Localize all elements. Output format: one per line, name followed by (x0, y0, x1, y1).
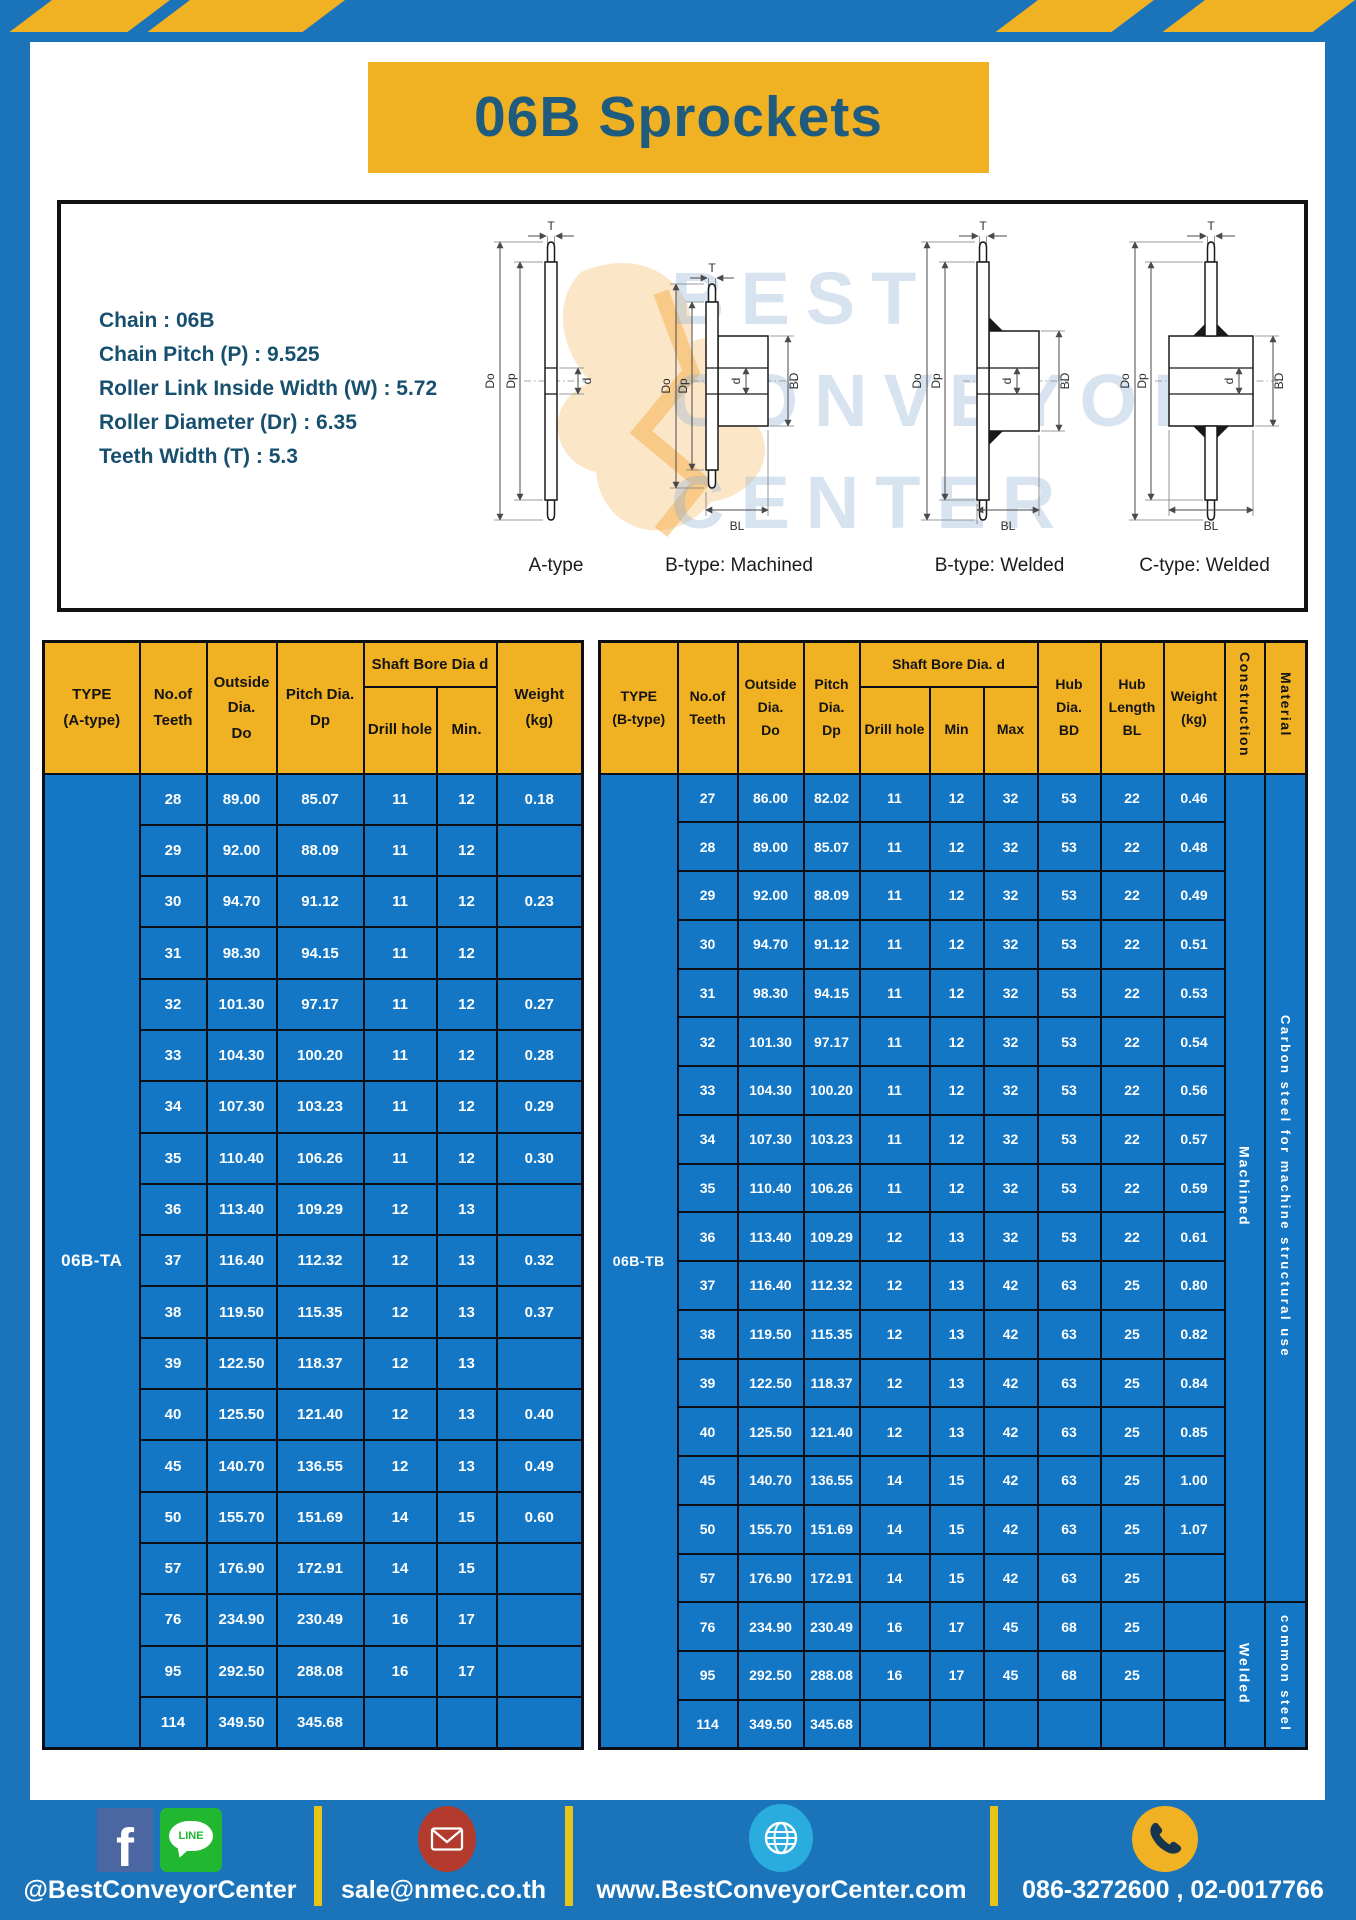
table-cell: 106.26 (804, 1164, 860, 1213)
table-cell: 288.08 (804, 1651, 860, 1700)
table-cell: 32 (984, 1164, 1038, 1213)
page-border-left (0, 0, 30, 1920)
table-cell: 45 (140, 1440, 207, 1491)
table-cell: 0.46 (1164, 774, 1225, 823)
globe-icon[interactable] (749, 1804, 813, 1872)
table-cell (497, 1594, 583, 1645)
column-header: Hub Length BL (1101, 642, 1164, 774)
table-row: 38119.50115.3512134263250.82 (600, 1310, 1307, 1359)
svg-text:BL: BL (729, 519, 744, 533)
table-cell: 53 (1038, 1066, 1101, 1115)
table-cell: 32 (984, 871, 1038, 920)
table-cell: 29 (678, 871, 738, 920)
table-cell: 136.55 (804, 1456, 860, 1505)
table-cell: 63 (1038, 1359, 1101, 1408)
spec-line: Chain Pitch (P) : 9.525 (99, 338, 437, 372)
table-cell: 88.09 (804, 871, 860, 920)
top-decorative-band (0, 0, 1356, 42)
column-header-construction: Construction (1225, 642, 1265, 774)
table-cell: 53 (1038, 1017, 1101, 1066)
table-cell: 27 (678, 774, 738, 823)
table-cell: 151.69 (804, 1505, 860, 1554)
table-cell: 11 (364, 825, 437, 876)
table-cell: 97.17 (277, 979, 364, 1030)
table-cell: 36 (678, 1212, 738, 1261)
spec-line: Teeth Width (T) : 5.3 (99, 440, 437, 474)
table-cell: 13 (437, 1286, 497, 1337)
table-cell: 42 (984, 1310, 1038, 1359)
table-cell: 37 (678, 1261, 738, 1310)
table-cell: 12 (437, 1030, 497, 1081)
table-cell: 32 (678, 1017, 738, 1066)
table-row: 50155.70151.6914154263251.07 (600, 1505, 1307, 1554)
table-cell: 12 (364, 1286, 437, 1337)
table-cell: 53 (1038, 920, 1101, 969)
table-cell: 13 (437, 1389, 497, 1440)
table-cell: 140.70 (738, 1456, 804, 1505)
table-cell: 33 (678, 1066, 738, 1115)
table-cell: 12 (930, 1115, 984, 1164)
table-cell: 176.90 (207, 1543, 277, 1594)
table-row: 45140.70136.5514154263251.00 (600, 1456, 1307, 1505)
table-cell: 82.02 (804, 774, 860, 823)
table-cell: 12 (860, 1261, 930, 1310)
table-cell: 25 (1101, 1554, 1164, 1603)
svg-text:Dp: Dp (1135, 373, 1149, 389)
table-cell: 76 (140, 1594, 207, 1645)
column-header: Max (984, 687, 1038, 774)
table-cell: 172.91 (804, 1554, 860, 1603)
table-cell: 85.07 (277, 774, 364, 825)
table-cell: 76 (678, 1602, 738, 1651)
table-cell: 42 (984, 1505, 1038, 1554)
table-cell: 114 (140, 1697, 207, 1748)
table-cell: 14 (364, 1543, 437, 1594)
column-header: Outside Dia. Do (738, 642, 804, 774)
table-cell: 86.00 (738, 774, 804, 823)
table-cell: 12 (364, 1440, 437, 1491)
table-cell: 63 (1038, 1310, 1101, 1359)
table-cell: 0.29 (497, 1081, 583, 1132)
table-cell: 12 (437, 825, 497, 876)
phone-icon[interactable] (1132, 1806, 1198, 1872)
table-cell: 89.00 (207, 774, 277, 825)
diagram-caption: C-type: Welded (1107, 555, 1302, 577)
table-cell: 12 (860, 1407, 930, 1456)
hazard-stripe (10, 0, 170, 32)
table-cell: 37 (140, 1235, 207, 1286)
table-cell: 12 (860, 1359, 930, 1408)
svg-text:Do: Do (483, 373, 497, 389)
table-cell: 118.37 (277, 1338, 364, 1389)
table-cell: 0.56 (1164, 1066, 1225, 1115)
table-cell: 63 (1038, 1407, 1101, 1456)
specs-list: Chain : 06BChain Pitch (P) : 9.525Roller… (99, 304, 437, 474)
table-cell: 92.00 (738, 871, 804, 920)
table-row: 2992.0088.0911123253220.49 (600, 871, 1307, 920)
table-row: 06B-TA2889.0085.0711120.18 (44, 774, 583, 825)
svg-text:BD: BD (1272, 372, 1286, 389)
facebook-icon[interactable]: f (97, 1808, 153, 1872)
website-label[interactable]: www.BestConveyorCenter.com (573, 1876, 990, 1910)
table-cell: 1.07 (1164, 1505, 1225, 1554)
table-cell: 94.70 (207, 876, 277, 927)
table-cell: 53 (1038, 1115, 1101, 1164)
table-cell: 12 (437, 1133, 497, 1184)
table-cell (860, 1700, 930, 1749)
table-cell (1164, 1554, 1225, 1603)
table-cell: 57 (140, 1543, 207, 1594)
table-cell: 53 (1038, 774, 1101, 823)
table-cell: 121.40 (277, 1389, 364, 1440)
table-cell: 16 (860, 1651, 930, 1700)
table-cell: 57 (678, 1554, 738, 1603)
column-header: Min (930, 687, 984, 774)
table-cell: 0.23 (497, 876, 583, 927)
table-cell: 32 (984, 1066, 1038, 1115)
page-border-right (1325, 0, 1356, 1920)
svg-text:d: d (1222, 378, 1236, 385)
table-cell: 109.29 (804, 1212, 860, 1261)
table-cell: 12 (930, 1017, 984, 1066)
table-cell: 12 (930, 969, 984, 1018)
table-cell: 53 (1038, 1212, 1101, 1261)
table-cell: 92.00 (207, 825, 277, 876)
table-cell (1164, 1700, 1225, 1749)
table-cell (1164, 1602, 1225, 1651)
table-cell (1164, 1651, 1225, 1700)
table-cell: 17 (930, 1602, 984, 1651)
table-cell: 0.61 (1164, 1212, 1225, 1261)
table-row: 3198.3094.1511123253220.53 (600, 969, 1307, 1018)
table-cell: 13 (437, 1440, 497, 1491)
table-cell: 230.49 (804, 1602, 860, 1651)
email-icon[interactable] (418, 1806, 476, 1872)
table-cell: 22 (1101, 822, 1164, 871)
table-cell: 39 (140, 1338, 207, 1389)
table-cell: 91.12 (277, 876, 364, 927)
table-cell: 25 (1101, 1310, 1164, 1359)
table-cell: 292.50 (738, 1651, 804, 1700)
column-header: Outside Dia. Do (207, 642, 277, 774)
table-cell: 345.68 (804, 1700, 860, 1749)
vertical-span-cell: common steel (1265, 1602, 1307, 1748)
table-row: 57176.90172.911415426325 (600, 1554, 1307, 1603)
table-cell: 11 (364, 1081, 437, 1132)
table-cell: 68 (1038, 1651, 1101, 1700)
b-type-spec-table: TYPE (B-type) No.of Teeth Outside Dia. D… (598, 640, 1308, 1750)
table-cell: 13 (930, 1310, 984, 1359)
table-cell: 32 (984, 1017, 1038, 1066)
table-cell: 53 (1038, 1164, 1101, 1213)
table-cell: 115.35 (804, 1310, 860, 1359)
table-cell: 25 (1101, 1359, 1164, 1408)
footer-divider (314, 1806, 322, 1906)
table-cell: 107.30 (207, 1081, 277, 1132)
table-cell: 125.50 (738, 1407, 804, 1456)
table-cell: 0.37 (497, 1286, 583, 1337)
table-cell: 32 (984, 822, 1038, 871)
table-cell: 11 (364, 979, 437, 1030)
social-handle-label[interactable]: @BestConveyorCenter (4, 1876, 316, 1910)
table-cell: 13 (437, 1184, 497, 1235)
table-cell: 22 (1101, 1164, 1164, 1213)
table-cell: 113.40 (207, 1184, 277, 1235)
table-cell (1101, 1700, 1164, 1749)
table-cell: 116.40 (207, 1235, 277, 1286)
table-cell: 112.32 (277, 1235, 364, 1286)
table-cell: 35 (678, 1164, 738, 1213)
table-cell: 32 (984, 920, 1038, 969)
table-cell: 0.84 (1164, 1359, 1225, 1408)
table-cell: 63 (1038, 1505, 1101, 1554)
table-cell: 288.08 (277, 1646, 364, 1697)
table-cell: 42 (984, 1456, 1038, 1505)
table-cell: 42 (984, 1407, 1038, 1456)
table-cell: 11 (860, 1066, 930, 1115)
svg-text:BD: BD (787, 372, 801, 389)
table-cell: 34 (140, 1081, 207, 1132)
table-cell: 25 (1101, 1651, 1164, 1700)
table-cell: 17 (930, 1651, 984, 1700)
table-cell: 11 (364, 1133, 437, 1184)
diagram-caption: B-type: Welded (897, 555, 1102, 577)
table-cell: 1.00 (1164, 1456, 1225, 1505)
column-header: Pitch Dia. Dp (277, 642, 364, 774)
table-cell: 94.15 (804, 969, 860, 1018)
table-cell: 15 (437, 1492, 497, 1543)
table-row: 40125.50121.4012134263250.85 (600, 1407, 1307, 1456)
svg-text:Do: Do (659, 378, 673, 394)
svg-text:Dp: Dp (929, 373, 943, 389)
table-cell: 0.60 (497, 1492, 583, 1543)
column-header-material: Material (1265, 642, 1307, 774)
table-cell: 12 (437, 979, 497, 1030)
svg-text:T: T (708, 261, 716, 275)
table-cell: 12 (860, 1310, 930, 1359)
contact-footer: f LINE @BestConveyorCenter sale@nmec.co.… (0, 1800, 1356, 1920)
table-cell: 0.54 (1164, 1017, 1225, 1066)
vertical-span-cell: Machined (1225, 774, 1265, 1603)
column-header: Hub Dia. BD (1038, 642, 1101, 774)
line-app-icon[interactable]: LINE (160, 1808, 222, 1872)
table-cell: 100.20 (804, 1066, 860, 1115)
table-cell: 0.48 (1164, 822, 1225, 871)
table-cell: 68 (1038, 1602, 1101, 1651)
phone-numbers-label[interactable]: 086-3272600 , 02-0017766 (998, 1876, 1348, 1910)
table-cell: 25 (1101, 1602, 1164, 1651)
table-cell: 17 (437, 1646, 497, 1697)
table-cell: 12 (930, 774, 984, 823)
table-cell (437, 1697, 497, 1748)
svg-text:Do: Do (1118, 373, 1132, 389)
table-cell: 11 (364, 774, 437, 825)
table-cell: 0.85 (1164, 1407, 1225, 1456)
table-cell: 53 (1038, 871, 1101, 920)
table-cell: 16 (364, 1594, 437, 1645)
table-cell: 45 (678, 1456, 738, 1505)
svg-text:d: d (1000, 378, 1014, 385)
table-cell: 115.35 (277, 1286, 364, 1337)
email-label[interactable]: sale@nmec.co.th (322, 1876, 565, 1910)
table-cell: 14 (364, 1492, 437, 1543)
column-header: TYPE (A-type) (44, 642, 140, 774)
table-cell: 0.28 (497, 1030, 583, 1081)
table-cell: 98.30 (207, 927, 277, 978)
table-cell: 113.40 (738, 1212, 804, 1261)
column-header: No.of Teeth (140, 642, 207, 774)
table-cell: 0.32 (497, 1235, 583, 1286)
table-cell: 15 (930, 1456, 984, 1505)
table-cell (497, 1646, 583, 1697)
table-cell: 176.90 (738, 1554, 804, 1603)
table-cell: 0.30 (497, 1133, 583, 1184)
table-row: 06B-TB2786.0082.0211123253220.46Machined… (600, 774, 1307, 823)
spec-line: Roller Link Inside Width (W) : 5.72 (99, 372, 437, 406)
table-cell: 31 (678, 969, 738, 1018)
table-cell: 14 (860, 1554, 930, 1603)
table-cell: 119.50 (207, 1286, 277, 1337)
table-cell: 29 (140, 825, 207, 876)
table-cell: 0.18 (497, 774, 583, 825)
table-cell: 121.40 (804, 1407, 860, 1456)
table-cell: 16 (364, 1646, 437, 1697)
table-cell: 11 (860, 871, 930, 920)
svg-text:BD: BD (1058, 372, 1072, 389)
footer-divider (990, 1806, 998, 1906)
table-cell: 28 (678, 822, 738, 871)
table-cell: 15 (930, 1554, 984, 1603)
table-cell: 12 (364, 1235, 437, 1286)
page-title: 06B Sprockets (368, 62, 989, 173)
column-header: Weight (kg) (1164, 642, 1225, 774)
table-cell: 110.40 (738, 1164, 804, 1213)
table-row: 36113.40109.2912133253220.61 (600, 1212, 1307, 1261)
table-cell: 11 (860, 1115, 930, 1164)
table-cell: 0.49 (497, 1440, 583, 1491)
column-header: Min. (437, 687, 497, 774)
table-cell: 104.30 (207, 1030, 277, 1081)
svg-text:BL: BL (1204, 519, 1219, 533)
table-cell: 0.59 (1164, 1164, 1225, 1213)
table-row: 95292.50288.081617456825 (600, 1651, 1307, 1700)
table-cell: 22 (1101, 1212, 1164, 1261)
table-cell: 234.90 (207, 1594, 277, 1645)
table-cell: 12 (364, 1338, 437, 1389)
svg-text:Dp: Dp (676, 378, 690, 394)
table-cell: 39 (678, 1359, 738, 1408)
table-cell: 155.70 (738, 1505, 804, 1554)
table-cell: 22 (1101, 969, 1164, 1018)
table-cell: 11 (860, 1164, 930, 1213)
table-cell: 13 (930, 1359, 984, 1408)
table-cell: 32 (984, 969, 1038, 1018)
type-label: 06B-TA (44, 774, 140, 1749)
table-row: 3094.7091.1211123253220.51 (600, 920, 1307, 969)
table-cell: 22 (1101, 1017, 1164, 1066)
table-cell: 22 (1101, 920, 1164, 969)
column-header-group: Shaft Bore Dia d (364, 642, 497, 687)
table-cell: 107.30 (738, 1115, 804, 1164)
table-cell: 42 (984, 1554, 1038, 1603)
table-cell: 95 (678, 1651, 738, 1700)
table-cell: 155.70 (207, 1492, 277, 1543)
table-cell: 0.80 (1164, 1261, 1225, 1310)
table-cell: 349.50 (207, 1697, 277, 1748)
column-header-group: Shaft Bore Dia. d (860, 642, 1038, 687)
table-cell: 109.29 (277, 1184, 364, 1235)
table-cell: 12 (860, 1212, 930, 1261)
table-cell: 0.27 (497, 979, 583, 1030)
table-cell: 32 (984, 1115, 1038, 1164)
table-cell: 98.30 (738, 969, 804, 1018)
table-cell: 0.40 (497, 1389, 583, 1440)
table-cell: 40 (140, 1389, 207, 1440)
table-cell: 125.50 (207, 1389, 277, 1440)
table-cell: 22 (1101, 774, 1164, 823)
table-cell: 45 (984, 1651, 1038, 1700)
table-cell: 63 (1038, 1261, 1101, 1310)
table-cell: 11 (860, 774, 930, 823)
footer-divider (565, 1806, 573, 1906)
vertical-span-cell: Welded (1225, 1602, 1265, 1748)
table-cell: 25 (1101, 1407, 1164, 1456)
table-cell: 12 (930, 1066, 984, 1115)
table-cell: 100.20 (277, 1030, 364, 1081)
table-cell: 50 (140, 1492, 207, 1543)
table-cell: 12 (930, 920, 984, 969)
spec-line: Chain : 06B (99, 304, 437, 338)
table-cell: 292.50 (207, 1646, 277, 1697)
hazard-stripe (1163, 0, 1355, 32)
table-cell: 85.07 (804, 822, 860, 871)
table-cell (1038, 1700, 1101, 1749)
svg-text:T: T (1207, 219, 1215, 233)
table-cell: 38 (140, 1286, 207, 1337)
table-cell: 11 (364, 1030, 437, 1081)
diagram-caption: A-type (461, 555, 651, 577)
table-cell (497, 927, 583, 978)
column-header: Weight (kg) (497, 642, 583, 774)
table-cell: 36 (140, 1184, 207, 1235)
table-cell: 12 (930, 822, 984, 871)
table-cell: 31 (140, 927, 207, 978)
sprocket-diagram-b-welded: T Do Dp (897, 218, 1102, 598)
table-cell: 136.55 (277, 1440, 364, 1491)
table-cell: 34 (678, 1115, 738, 1164)
table-cell: 119.50 (738, 1310, 804, 1359)
table-cell: 15 (437, 1543, 497, 1594)
vertical-span-cell: Carbon steel for machine structural use (1265, 774, 1307, 1603)
table-cell: 11 (860, 822, 930, 871)
table-cell: 40 (678, 1407, 738, 1456)
table-cell: 11 (860, 969, 930, 1018)
column-header: Pitch Dia. Dp (804, 642, 860, 774)
table-cell: 234.90 (738, 1602, 804, 1651)
svg-text:T: T (547, 219, 555, 233)
table-cell: 12 (364, 1389, 437, 1440)
table-cell: 11 (364, 876, 437, 927)
table-cell: 122.50 (207, 1338, 277, 1389)
table-cell: 106.26 (277, 1133, 364, 1184)
table-cell: 110.40 (207, 1133, 277, 1184)
table-cell: 345.68 (277, 1697, 364, 1748)
column-header: Drill hole (364, 687, 437, 774)
table-cell: 32 (984, 774, 1038, 823)
table-cell: 28 (140, 774, 207, 825)
table-cell: 13 (437, 1235, 497, 1286)
table-cell: 53 (1038, 822, 1101, 871)
